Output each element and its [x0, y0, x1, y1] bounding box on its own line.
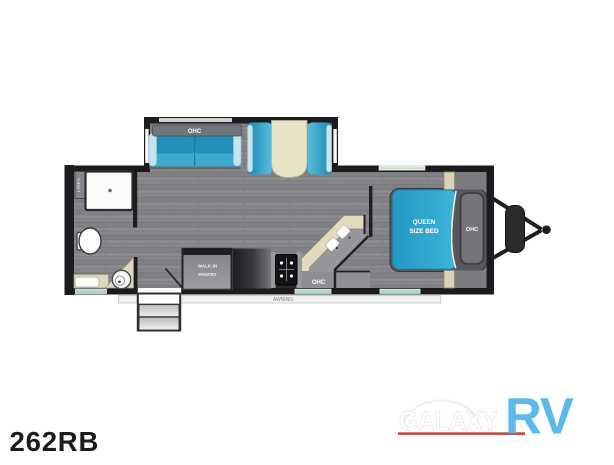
- svg-text:262RB: 262RB: [10, 426, 100, 457]
- svg-text:LINEN: LINEN: [76, 178, 81, 192]
- svg-text:AWNING: AWNING: [273, 297, 293, 303]
- svg-text:GALAXY: GALAXY: [399, 406, 498, 436]
- svg-text:WALK-IN: WALK-IN: [198, 264, 218, 269]
- svg-text:OHC: OHC: [188, 129, 202, 135]
- svg-text:OHC: OHC: [466, 227, 478, 233]
- svg-text:PANTRY: PANTRY: [198, 272, 216, 277]
- svg-text:OHC: OHC: [312, 280, 326, 286]
- svg-text:QUEEN: QUEEN: [413, 219, 436, 226]
- svg-text:RV: RV: [505, 388, 574, 445]
- svg-text:SIZE BED: SIZE BED: [409, 228, 438, 235]
